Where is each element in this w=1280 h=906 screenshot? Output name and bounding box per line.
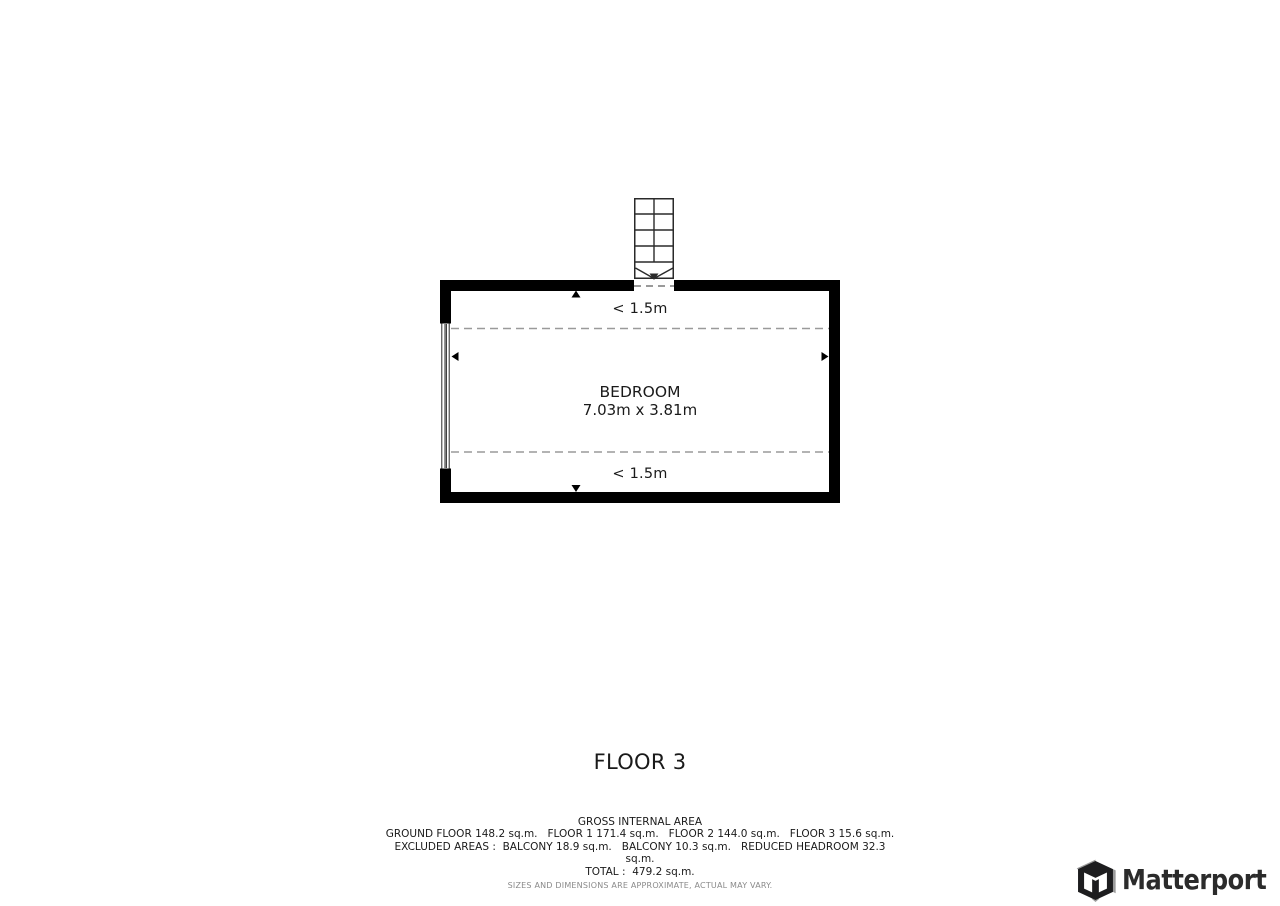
area-summary-floors: GROUND FLOOR 148.2 sq.m. FLOOR 1 171.4 s… (0, 828, 1280, 840)
room-dimensions: 7.03m x 3.81m (440, 402, 840, 420)
matterport-wordmark: Matterport (1122, 858, 1266, 901)
stairs (635, 199, 674, 280)
matterport-logo: Matterport (1074, 858, 1280, 902)
room-name: BEDROOM (440, 384, 840, 402)
floorplan-page: < 1.5m BEDROOM 7.03m x 3.81m < 1.5m FLOO… (0, 0, 1280, 906)
headroom-label-bottom: < 1.5m (440, 466, 840, 482)
floorplan-drawing (430, 190, 850, 510)
matterport-logo-icon (1074, 859, 1117, 902)
area-summary-excluded: EXCLUDED AREAS : BALCONY 18.9 sq.m. BALC… (0, 841, 1280, 853)
stair-opening (634, 280, 674, 291)
headroom-label-top: < 1.5m (440, 301, 840, 317)
room-label: BEDROOM 7.03m x 3.81m (440, 384, 840, 419)
floor-title: FLOOR 3 (440, 750, 840, 774)
area-summary-heading: GROSS INTERNAL AREA (0, 816, 1280, 828)
